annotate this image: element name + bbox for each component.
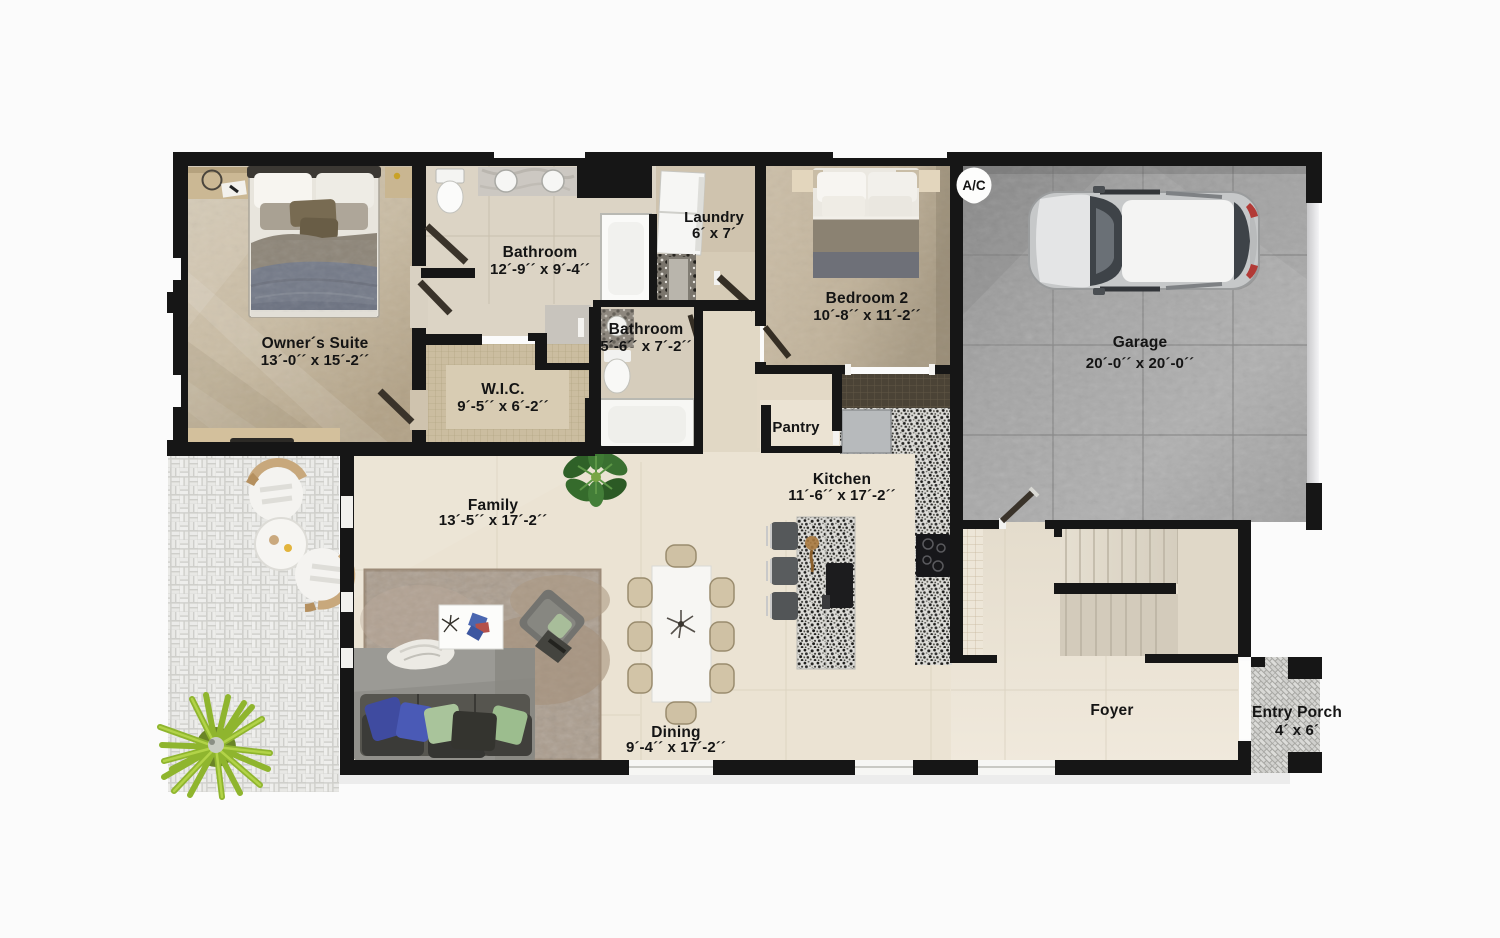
svg-text:Entry Porch: Entry Porch <box>1252 704 1342 721</box>
svg-text:W.I.C.: W.I.C. <box>481 381 524 398</box>
svg-text:Kitchen: Kitchen <box>813 471 871 488</box>
svg-text:9´-4´´ x 17´-2´´: 9´-4´´ x 17´-2´´ <box>626 739 726 756</box>
svg-text:Pantry: Pantry <box>772 419 820 436</box>
svg-text:Bathroom: Bathroom <box>503 244 578 261</box>
svg-text:10´-8´´ x 11´-2´´: 10´-8´´ x 11´-2´´ <box>813 307 921 324</box>
svg-text:Laundry: Laundry <box>684 209 744 226</box>
svg-text:13´-0´´ x 15´-2´´: 13´-0´´ x 15´-2´´ <box>261 352 369 369</box>
svg-text:4´ x 6´: 4´ x 6´ <box>1275 722 1319 739</box>
svg-text:12´-9´´ x 9´-4´´: 12´-9´´ x 9´-4´´ <box>490 261 590 278</box>
svg-text:5´-6´´ x 7´-2´´: 5´-6´´ x 7´-2´´ <box>600 338 692 355</box>
svg-text:13´-5´´ x 17´-2´´: 13´-5´´ x 17´-2´´ <box>439 512 547 529</box>
svg-text:9´-5´´ x 6´-2´´: 9´-5´´ x 6´-2´´ <box>457 398 549 415</box>
svg-text:Bathroom: Bathroom <box>609 321 684 338</box>
svg-text:6´ x 7´: 6´ x 7´ <box>692 225 736 242</box>
svg-text:Bedroom 2: Bedroom 2 <box>826 290 909 307</box>
svg-text:20´-0´´ x 20´-0´´: 20´-0´´ x 20´-0´´ <box>1086 355 1194 372</box>
svg-text:11´-6´´ x 17´-2´´: 11´-6´´ x 17´-2´´ <box>788 487 896 504</box>
svg-text:Foyer: Foyer <box>1090 702 1133 719</box>
svg-text:Garage: Garage <box>1113 334 1168 351</box>
svg-text:Owner´s Suite: Owner´s Suite <box>262 335 369 352</box>
svg-text:A/C: A/C <box>962 178 986 193</box>
